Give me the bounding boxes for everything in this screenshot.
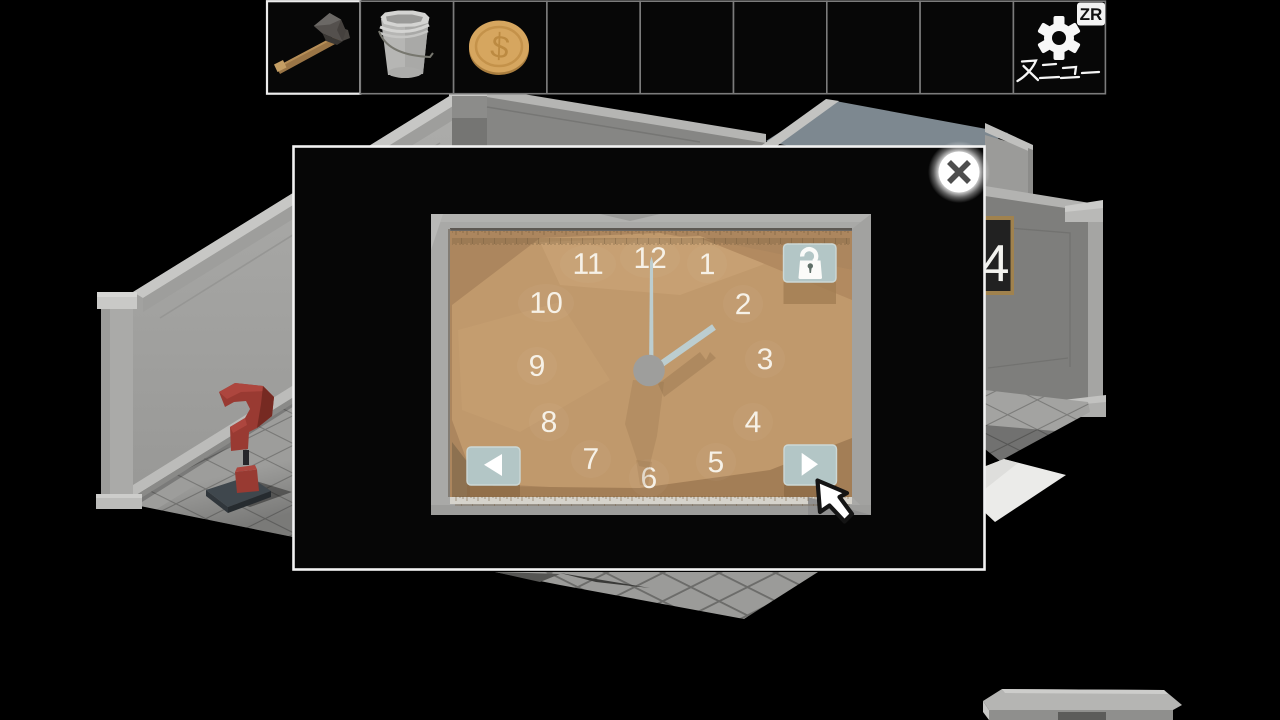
svg-text:3: 3 [757,343,774,376]
svg-text:9: 9 [529,350,546,383]
svg-text:5: 5 [708,446,725,479]
svg-text:11: 11 [573,248,604,281]
svg-text:ZR: ZR [1080,5,1103,24]
svg-text:10: 10 [529,287,562,320]
svg-text:2: 2 [735,288,752,321]
svg-text:7: 7 [583,443,600,476]
svg-text:4: 4 [745,406,762,439]
svg-text:1: 1 [699,248,716,281]
svg-text:8: 8 [541,406,558,439]
